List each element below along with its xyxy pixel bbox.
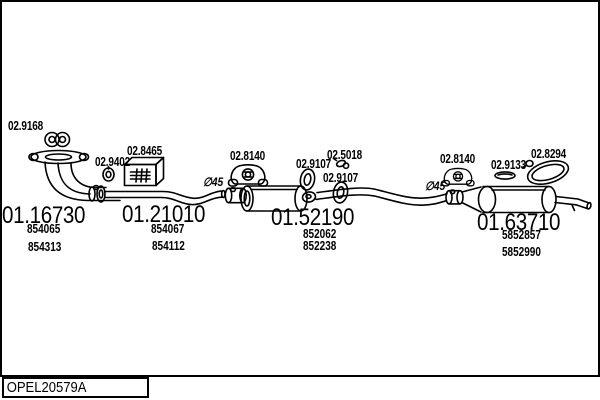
gasket-ring-icon — [299, 168, 316, 191]
oe-reference: 854067 — [151, 223, 184, 235]
drawing-code: OPEL20579A — [4, 381, 87, 395]
oe-reference: 854313 — [28, 241, 61, 253]
exhaust-diagram — [0, 0, 600, 377]
rubber-hanger-icon — [229, 165, 268, 186]
rubber-hanger-icon — [442, 169, 474, 186]
accessory-number-02-9133[interactable]: 02.9133 — [491, 159, 526, 171]
band-clamp-icon — [523, 157, 572, 189]
oe-reference: 854112 — [152, 240, 185, 252]
accessory-number-02-5018[interactable]: 02.5018 — [327, 149, 362, 161]
mounting-box-icon — [125, 158, 164, 186]
flat-gasket-icon — [495, 172, 515, 179]
catalog-page: 02.9168 02.9402 02.8465 02.8140 02.9107 … — [0, 0, 600, 400]
oe-reference: 5852857 — [502, 229, 541, 241]
accessory-number-02-9107[interactable]: 02.9107 — [323, 172, 358, 184]
accessory-number-02-8140[interactable]: 02.8140 — [230, 150, 265, 162]
part-number-01-52190[interactable]: 01.52190 — [271, 206, 354, 229]
accessory-number-02-9168[interactable]: 02.9168 — [8, 120, 43, 132]
accessory-number-02-8465[interactable]: 02.8465 — [127, 145, 162, 157]
accessory-number-02-8294[interactable]: 02.8294 — [531, 148, 566, 160]
pipe-diameter-annotation: ∅45 — [203, 177, 223, 188]
accessory-number-02-8140[interactable]: 02.8140 — [440, 153, 475, 165]
accessory-number-02-9107[interactable]: 02.9107 — [296, 158, 331, 170]
pipe-diameter-annotation: ∅45 — [425, 181, 445, 192]
oe-reference: 854065 — [27, 223, 60, 235]
accessory-number-02-9402[interactable]: 02.9402 — [95, 156, 130, 168]
rear-sleeve-drawing — [446, 190, 463, 204]
double-ring-clamp-icon — [45, 133, 70, 147]
oe-reference: 5852990 — [502, 246, 541, 258]
drawing-code-box: OPEL20579A — [2, 377, 149, 398]
oe-reference: 852238 — [303, 240, 336, 252]
